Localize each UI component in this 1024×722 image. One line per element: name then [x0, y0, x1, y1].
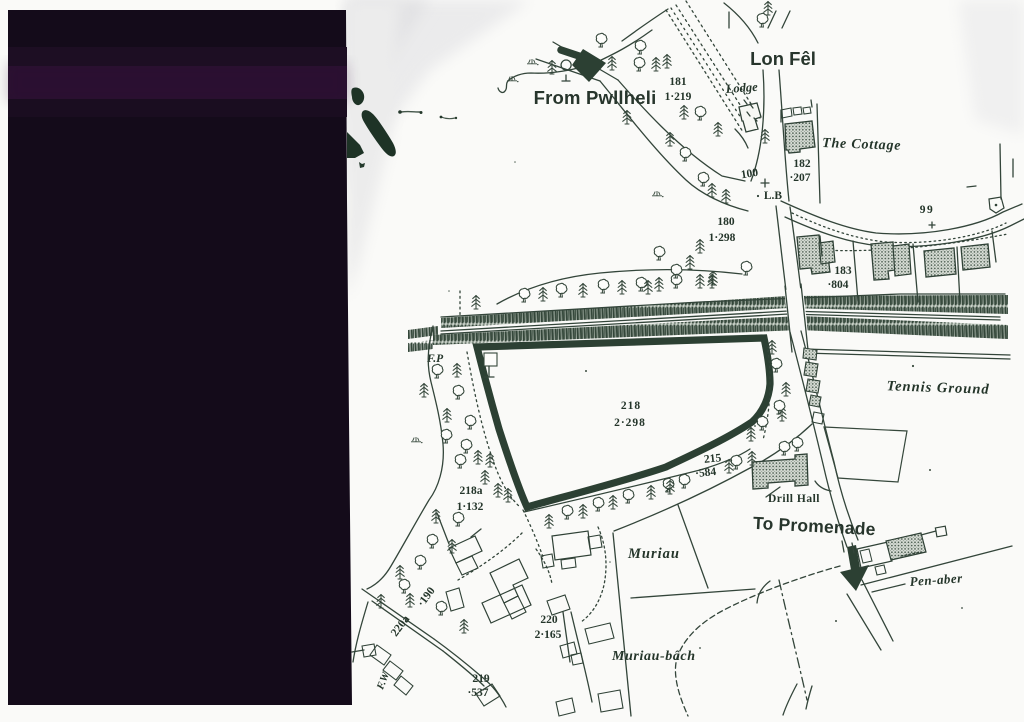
- svg-text:Muriau: Muriau: [627, 546, 680, 562]
- svg-text:219: 219: [472, 673, 490, 685]
- svg-text:Muriau-bâch: Muriau-bâch: [611, 649, 696, 664]
- svg-text:·207: ·207: [789, 172, 810, 184]
- svg-text:218: 218: [621, 400, 641, 412]
- svg-text:L.B: L.B: [764, 190, 783, 202]
- svg-text:220: 220: [540, 614, 558, 626]
- svg-text:1·132: 1·132: [457, 501, 484, 513]
- svg-text:1·219: 1·219: [665, 91, 692, 103]
- svg-text:2·165: 2·165: [535, 629, 562, 641]
- svg-text:·804: ·804: [827, 279, 848, 291]
- svg-text:218a: 218a: [460, 485, 483, 497]
- svg-text:182: 182: [793, 158, 811, 170]
- svg-text:Drill Hall: Drill Hall: [768, 493, 820, 505]
- svg-text:183: 183: [834, 265, 852, 277]
- svg-text:180: 180: [717, 216, 735, 228]
- svg-text:99: 99: [920, 204, 935, 216]
- svg-text:Lodge: Lodge: [724, 80, 758, 96]
- svg-text:From Pwllheli: From Pwllheli: [534, 87, 657, 108]
- svg-text:1·298: 1·298: [709, 232, 736, 244]
- svg-text:2·298: 2·298: [614, 417, 646, 429]
- svg-text:Lon Fêl: Lon Fêl: [750, 48, 816, 69]
- svg-text:181: 181: [669, 76, 687, 88]
- svg-text:The Cottage: The Cottage: [822, 136, 902, 154]
